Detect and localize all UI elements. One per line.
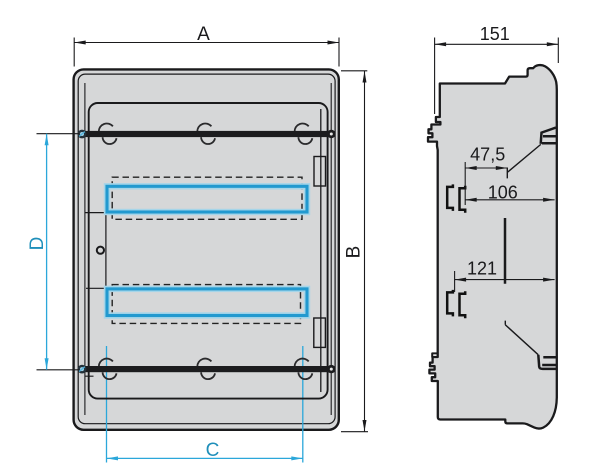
svg-text:151: 151 — [480, 24, 510, 44]
svg-text:A: A — [197, 24, 210, 45]
svg-text:B: B — [344, 246, 365, 259]
svg-text:D: D — [27, 237, 48, 251]
svg-text:106: 106 — [488, 182, 518, 202]
svg-text:47,5: 47,5 — [470, 144, 505, 164]
svg-text:121: 121 — [467, 259, 497, 279]
svg-text:C: C — [206, 440, 220, 461]
